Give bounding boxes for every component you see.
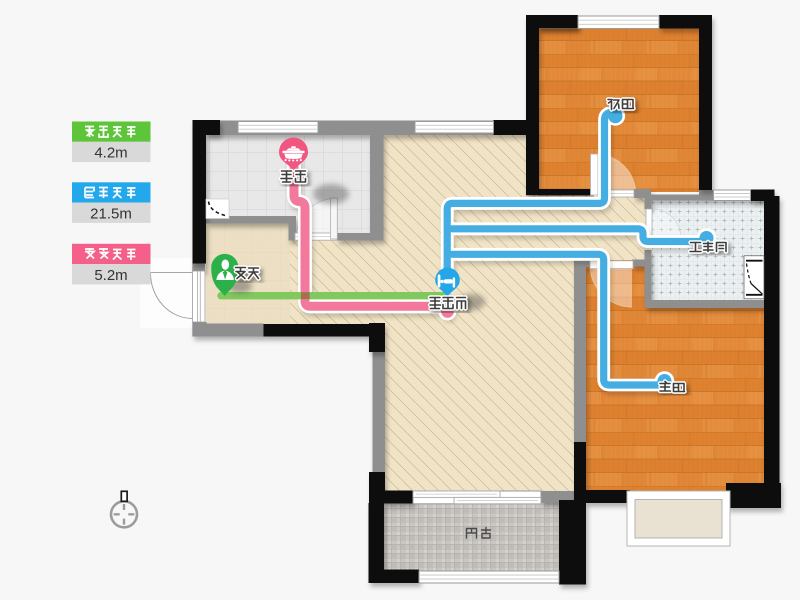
svg-text:21.5m: 21.5m [90,205,132,222]
svg-text:4.2m: 4.2m [94,145,127,162]
svg-text:5.2m: 5.2m [94,267,127,284]
